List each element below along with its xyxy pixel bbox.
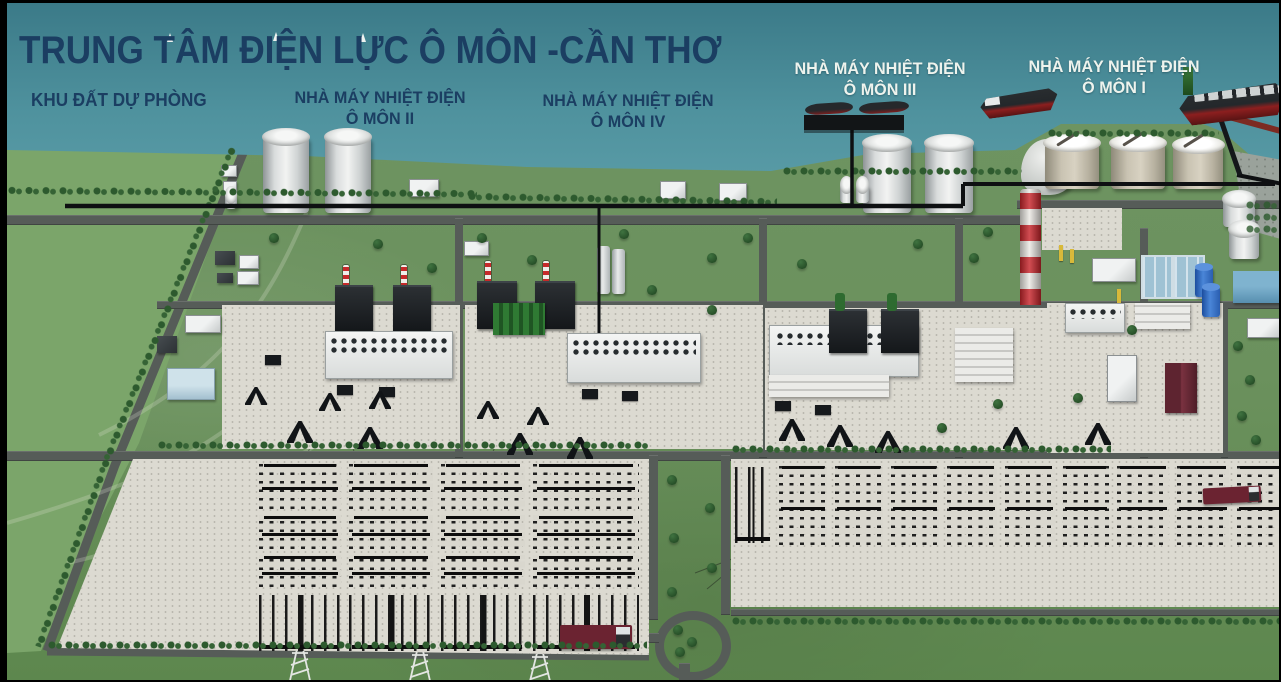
plant-name: NHÀ MÁY NHIỆT ĐIỆN <box>294 87 467 108</box>
transformer <box>622 391 638 401</box>
storage-tank <box>925 143 973 213</box>
utility-building <box>464 241 489 256</box>
tree <box>969 253 979 263</box>
tree <box>1251 435 1261 445</box>
chimney-area-pad <box>1042 208 1122 250</box>
tree <box>687 637 697 647</box>
zone-label-text: KHU ĐẤT DỰ PHÒNG <box>31 90 207 110</box>
plant-building <box>1135 303 1190 329</box>
tree <box>269 233 279 243</box>
tree <box>427 263 437 273</box>
flare-pole <box>1059 245 1063 261</box>
switchyard-bay <box>533 463 639 509</box>
coal-jetty <box>804 115 904 130</box>
tree <box>669 533 679 543</box>
tree <box>705 503 715 513</box>
roof-vents <box>330 337 448 353</box>
fuel-oil-tank <box>1111 143 1165 189</box>
switchyard-bay <box>441 463 525 509</box>
zone-label-omon4: NHÀ MÁY NHIỆT ĐIỆN Ô MÔN IV <box>542 90 715 133</box>
hrsg-unit <box>829 309 867 353</box>
switchyard-bay <box>533 555 639 587</box>
utility-building <box>215 251 235 265</box>
transformer <box>815 405 831 415</box>
blue-roof-warehouse <box>1233 271 1279 303</box>
tree <box>373 239 383 249</box>
zone-label-reserve: KHU ĐẤT DỰ PHÒNG <box>31 89 207 112</box>
frame-border-left <box>0 0 7 682</box>
truck-cab <box>1249 487 1260 502</box>
tree-row <box>47 639 647 652</box>
tree-row <box>157 439 649 451</box>
storage-tank <box>863 143 911 213</box>
tree <box>1245 375 1255 385</box>
switchyard-bay <box>779 465 827 545</box>
median-road-west <box>649 455 658 620</box>
switchyard-bay <box>441 515 525 549</box>
roundabout-south-stub <box>679 663 690 680</box>
transformer <box>337 385 353 395</box>
plant-name: NHÀ MÁY NHIỆT ĐIỆN <box>542 90 715 111</box>
tree <box>993 399 1003 409</box>
turbine-hall <box>1065 303 1125 333</box>
plant-unit: Ô MÔN IV <box>542 111 715 132</box>
transformer <box>775 401 791 411</box>
roof-vents <box>572 339 696 355</box>
tall-white-building <box>1107 355 1137 402</box>
truck <box>1203 485 1262 504</box>
tree <box>477 233 487 243</box>
zone-label-omon1: NHÀ MÁY NHIỆT ĐIỆN Ô MÔN I <box>1028 56 1201 99</box>
red-roof-building <box>1165 363 1197 413</box>
hrsg-stack <box>343 265 349 287</box>
green-tank <box>835 293 845 311</box>
warehouse-lightblue <box>167 368 215 400</box>
switchyard-bay <box>835 465 883 545</box>
tree <box>1127 325 1137 335</box>
transformer <box>582 389 598 399</box>
tree <box>675 647 685 657</box>
switchyard-bay <box>441 555 525 587</box>
green-machinery <box>493 303 545 335</box>
switchyard-bay <box>533 515 639 549</box>
zone-label-omon2: NHÀ MÁY NHIỆT ĐIỆN Ô MÔN II <box>294 87 467 130</box>
switchyard-bay <box>891 465 939 545</box>
tree-row <box>731 443 1111 455</box>
tree <box>647 285 657 295</box>
roof-vents <box>1069 308 1121 319</box>
water-tank <box>1229 229 1259 259</box>
median-road-east <box>721 455 730 615</box>
blue-tank <box>1202 287 1220 317</box>
tree <box>667 475 677 485</box>
hrsg-stack <box>401 265 407 287</box>
plant-unit: Ô MÔN I <box>1028 77 1201 98</box>
tree <box>707 563 717 573</box>
tree-row <box>782 165 1022 178</box>
hrsg-stack <box>485 261 491 283</box>
flare-pole <box>1070 249 1074 263</box>
green-tank <box>887 293 897 311</box>
tree <box>937 423 947 433</box>
tree <box>743 233 753 243</box>
hrsg-unit <box>881 309 919 353</box>
switchyard-bay <box>349 515 433 549</box>
fuel-oil-tank <box>1045 143 1099 189</box>
tree <box>1073 393 1083 403</box>
hrsg-unit <box>393 285 431 331</box>
small-tank <box>840 185 853 203</box>
switchyard-bay <box>259 463 341 509</box>
switchyard-bay <box>1177 465 1229 545</box>
plant-unit: Ô MÔN II <box>294 108 467 129</box>
switchyard-bay <box>259 555 341 587</box>
fuel-oil-tank <box>1173 145 1223 189</box>
tree <box>667 587 677 597</box>
plant-name: NHÀ MÁY NHIỆT ĐIỆN <box>794 58 967 79</box>
switchyard-bay <box>259 515 341 549</box>
title-text: TRUNG TÂM ĐIỆN LỰC Ô MÔN -CẦN THƠ <box>19 29 722 72</box>
frame-border-top <box>0 0 1281 3</box>
page-title: TRUNG TÂM ĐIỆN LỰC Ô MÔN -CẦN THƠ <box>19 29 722 73</box>
zone-label-omon3: NHÀ MÁY NHIỆT ĐIỆN Ô MÔN III <box>794 58 967 101</box>
turbine-hall <box>567 333 701 383</box>
tree <box>797 259 807 269</box>
switchyard-bay <box>947 465 997 545</box>
silo <box>612 249 625 294</box>
turbine-hall <box>325 331 453 379</box>
boiler-building <box>769 375 889 397</box>
tree-row <box>731 615 1279 628</box>
site-scene: TRUNG TÂM ĐIỆN LỰC Ô MÔN -CẦN THƠ KHU ĐẤ… <box>7 3 1279 680</box>
silo <box>597 246 610 294</box>
pier-bushes <box>1245 199 1279 233</box>
ribbed-plant-building <box>955 328 1013 382</box>
power-plant-chimney <box>1020 189 1041 305</box>
switchyard-bay <box>1117 465 1169 545</box>
switchyard-bay <box>1005 465 1055 545</box>
small-tank <box>856 185 869 203</box>
hrsg-stack <box>543 261 549 283</box>
switchyard-bay <box>1237 465 1279 545</box>
tree <box>673 625 683 635</box>
switchyard-bay <box>349 463 433 509</box>
switchyard-tower-bay <box>735 467 771 543</box>
hrsg-unit <box>335 285 373 331</box>
plant-building <box>1092 258 1136 282</box>
utility-building <box>237 271 259 285</box>
rendered-masterplan-image: TRUNG TÂM ĐIỆN LỰC Ô MÔN -CẦN THƠ KHU ĐẤ… <box>0 0 1281 682</box>
tree-row <box>1047 127 1219 139</box>
storage-tank <box>325 137 371 213</box>
plant-building <box>185 315 221 333</box>
water-treatment-pool <box>1141 255 1173 299</box>
plant-name: NHÀ MÁY NHIỆT ĐIỆN <box>1028 56 1201 77</box>
tree <box>1237 411 1247 421</box>
tree <box>619 229 629 239</box>
plant-building <box>1247 318 1279 338</box>
utility-building <box>217 273 233 283</box>
storage-tank <box>263 137 309 213</box>
tree <box>707 253 717 263</box>
tree <box>527 255 537 265</box>
switchyard-bay <box>349 555 433 587</box>
utility-building <box>239 255 259 269</box>
tree <box>913 239 923 249</box>
switchyard-bay <box>1063 465 1109 545</box>
shore-road <box>7 215 1022 225</box>
tree <box>983 227 993 237</box>
plant-unit: Ô MÔN III <box>794 79 967 100</box>
tree <box>707 305 717 315</box>
transformer <box>265 355 281 365</box>
tree <box>1233 341 1243 351</box>
